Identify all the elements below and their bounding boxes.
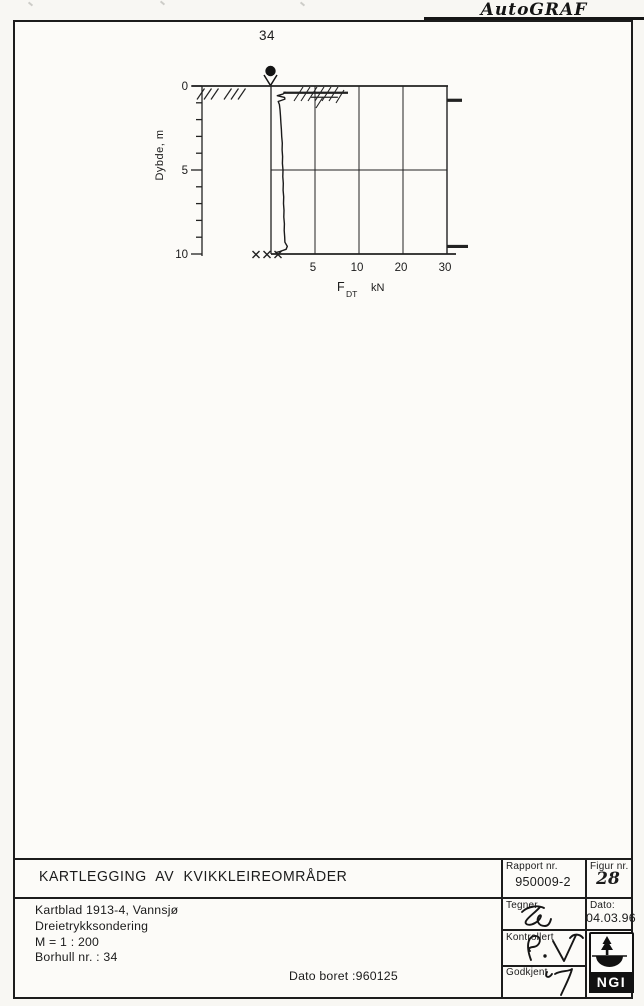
scanned-figure-page: { "header": { "software_logo": "AutoGRAF… xyxy=(0,0,644,1006)
depth-axis-title: Dybde, m xyxy=(154,129,166,180)
ground-hatching-icon xyxy=(197,89,246,100)
force-axis-title: F xyxy=(337,280,345,294)
dato-value: 04.03.96 xyxy=(586,911,632,925)
titleblock-divider xyxy=(15,897,631,899)
ngi-logo-text: NGI xyxy=(589,972,634,993)
rapport-nr-label: Rapport nr. xyxy=(506,861,558,872)
project-title: KARTLEGGING AV KVIKKLEIREOMRÅDER xyxy=(39,869,347,885)
info-method: Dreietrykksondering xyxy=(35,919,178,935)
rapport-nr-value: 950009-2 xyxy=(501,875,585,889)
figur-nr-value: 28 xyxy=(585,869,631,889)
info-scale: M = 1 : 200 xyxy=(35,935,178,951)
titleblock-divider xyxy=(15,858,631,860)
ngi-tree-icon xyxy=(591,934,628,970)
dato-label: Dato: xyxy=(590,900,615,911)
info-kartblad: Kartblad 1913-4, Vannsjø xyxy=(35,903,178,919)
ngi-logo: NGI xyxy=(588,931,633,995)
depth-tick-label: 10 xyxy=(175,249,188,261)
sounding-chart: 0510Dybde, m5102030FDTkN xyxy=(0,0,644,1006)
ngi-logo-emblem xyxy=(589,932,634,976)
title-block: KARTLEGGING AV KVIKKLEIREOMRÅDER Kartbla… xyxy=(15,858,631,997)
tegner-signature xyxy=(513,900,579,930)
force-tick-label: 10 xyxy=(351,262,364,274)
info-borehole: Borhull nr. : 34 xyxy=(35,950,178,966)
force-tick-label: 20 xyxy=(395,262,408,274)
borehole-symbol-icon xyxy=(264,66,277,86)
force-tick-label: 30 xyxy=(439,262,452,274)
figure-info: Kartblad 1913-4, Vannsjø Dreietrykksonde… xyxy=(35,903,178,966)
date-drilled: Dato boret :960125 xyxy=(289,969,398,983)
godkjent-signature xyxy=(539,965,585,997)
force-axis-subscript: DT xyxy=(346,289,357,299)
depth-tick-label: 5 xyxy=(182,165,188,177)
sounding-curve xyxy=(275,92,287,253)
kontrollert-signature xyxy=(507,928,593,964)
depth-tick-label: 0 xyxy=(182,81,188,93)
force-axis-unit: kN xyxy=(371,282,385,294)
force-tick-label: 5 xyxy=(310,262,316,274)
